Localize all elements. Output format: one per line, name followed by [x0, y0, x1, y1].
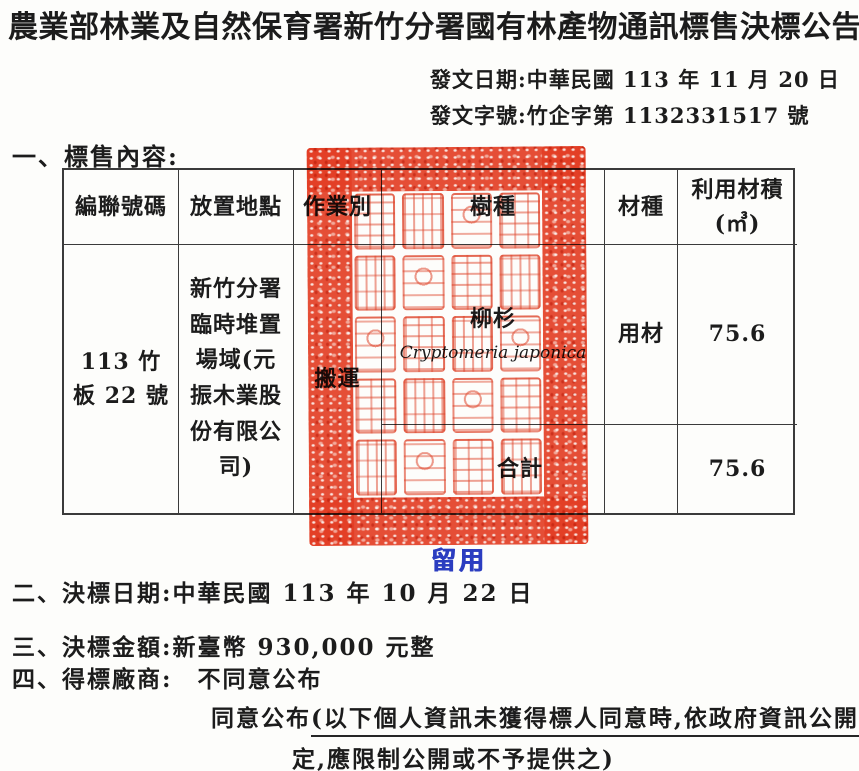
seal-glyph	[452, 377, 494, 433]
disagree-checkbox	[175, 669, 195, 689]
seal-glyph	[403, 378, 445, 434]
seal-glyph	[403, 316, 445, 372]
cell-total-material-empty	[605, 425, 678, 513]
seal-glyph	[451, 254, 493, 310]
privacy-note-line2: 定,應限制公開或不予提供之)	[292, 746, 615, 771]
seal-glyph	[452, 439, 494, 495]
winner-prefix: 四、得標廠商:	[12, 666, 173, 693]
col-header-material: 材種	[605, 170, 678, 245]
seal-script-glyphs	[354, 192, 542, 495]
seal-glyph	[499, 192, 541, 248]
scanned-announcement-page: 農業部林業及自然保育署新竹分署國有林產物通訊標售決標公告 發文日期:中華民國 1…	[0, 0, 859, 771]
cell-material: 用材	[605, 245, 678, 425]
col-header-volume: 利用材積 (㎥)	[678, 170, 797, 245]
cell-volume: 75.6	[678, 245, 797, 425]
document-title: 農業部林業及自然保育署新竹分署國有林產物通訊標售決標公告	[8, 10, 854, 46]
award-date-line: 二、決標日期:中華民國 113 年 10 月 22 日	[12, 574, 534, 608]
agree-line: 同意公布(以下個人資訊未獲得標人同意時,依政府資訊公開法第 18 條規	[186, 699, 859, 733]
seal-glyph	[500, 377, 542, 433]
privacy-note-line2-wrap: 定,應限制公開或不予提供之)	[292, 740, 615, 771]
cell-total-volume: 75.6	[678, 425, 797, 513]
seal-glyph	[500, 439, 542, 495]
issue-date: 發文日期:中華民國 113 年 11 月 20 日	[430, 64, 840, 94]
award-amount-line: 三、決標金額:新臺幣 930,000 元整	[12, 628, 436, 662]
col-header-volume-line2: (㎥)	[715, 207, 761, 241]
issue-number: 發文字號:竹企字第 1132331517 號	[430, 100, 810, 130]
seal-border-right	[542, 146, 589, 544]
winner-line: 四、得標廠商:不同意公布	[12, 660, 323, 694]
col-header-serial: 編聯號碼	[64, 170, 179, 245]
col-header-volume-line1: 利用材積	[691, 173, 783, 207]
seal-glyph	[451, 316, 493, 372]
cell-location: 新竹分署臨時堆置場域(元振木業股份有限公司)	[179, 245, 294, 513]
seal-glyph	[499, 254, 541, 310]
seal-glyph	[356, 440, 398, 496]
official-red-seal	[307, 146, 589, 546]
seal-glyph	[403, 255, 445, 311]
col-header-location: 放置地點	[179, 170, 294, 245]
seal-glyph	[355, 317, 397, 373]
cell-serial-number: 113 竹板 22 號	[64, 245, 179, 513]
agree-checkbox	[188, 708, 208, 728]
seal-glyph	[354, 255, 396, 311]
seal-glyph	[404, 439, 446, 495]
privacy-note-line1: (以下個人資訊未獲得標人同意時,依政府資訊公開法第 18 條規	[311, 705, 859, 737]
seal-border-left	[307, 148, 355, 546]
agree-label: 同意公布	[211, 705, 311, 732]
seal-glyph	[402, 193, 444, 249]
disagree-label: 不同意公布	[198, 666, 323, 693]
retention-stamp: 留用	[431, 541, 487, 577]
seal-glyph	[500, 316, 542, 372]
seal-glyph	[354, 193, 396, 249]
seal-glyph	[355, 378, 397, 434]
section-1-heading: 一、標售內容:	[12, 137, 179, 172]
seal-glyph	[450, 193, 492, 249]
